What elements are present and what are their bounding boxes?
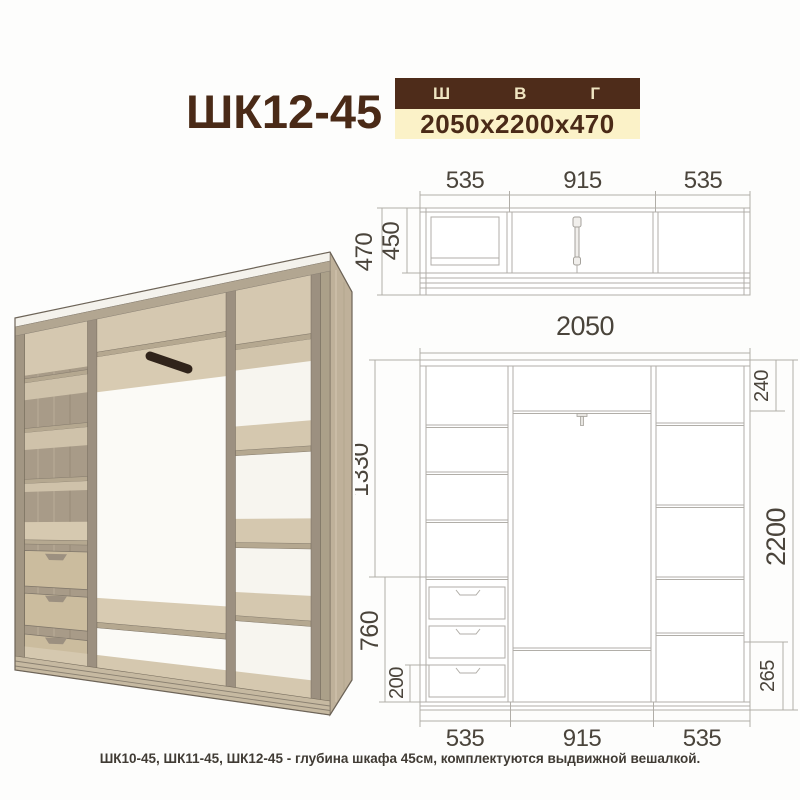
dim-left-plinth: 200 xyxy=(386,667,408,699)
dimensions-value: 2050x2200x470 xyxy=(395,109,640,139)
dimensions-legend: Ш В Г xyxy=(395,78,640,109)
dim-right-top: 240 xyxy=(751,370,773,402)
legend-height-label: В xyxy=(514,84,526,104)
top-view-drawing: 535 915 535 470 450 xyxy=(355,167,750,295)
left-wall xyxy=(15,316,25,671)
dim-bottom-width-right: 535 xyxy=(683,725,722,752)
model-title: ШК12-45 xyxy=(186,84,382,139)
legend-width-label: Ш xyxy=(433,84,450,104)
dim-bottom-width-middle: 915 xyxy=(563,725,602,752)
dim-right-total: 2200 xyxy=(761,508,791,566)
technical-drawing: 535 915 535 470 450 2050 xyxy=(355,155,800,760)
dim-top-width-right: 535 xyxy=(684,167,723,194)
footer-note: ШК10-45, ШК11-45, ШК12-45 - глубина шкаф… xyxy=(0,751,800,766)
dim-top-width-left: 535 xyxy=(446,167,485,194)
dim-front-width-total: 2050 xyxy=(556,311,614,341)
dim-left-upper: 1330 xyxy=(355,443,374,497)
dimensions-box: Ш В Г 2050x2200x470 xyxy=(395,78,640,139)
right-wall xyxy=(311,271,321,709)
dim-depth-inner: 450 xyxy=(378,222,405,261)
divider-right xyxy=(226,285,236,698)
wardrobe-3d-illustration xyxy=(0,240,365,755)
front-drawers xyxy=(429,587,505,697)
dim-bottom-width-left: 535 xyxy=(446,725,485,752)
dim-right-bottom: 265 xyxy=(757,660,779,692)
dim-left-drawers: 760 xyxy=(356,611,384,651)
dim-top-width-middle: 915 xyxy=(563,167,602,194)
catalog-page: ШК12-45 Ш В Г 2050x2200x470 xyxy=(0,0,800,800)
side-panel xyxy=(330,252,352,715)
front-view-drawing: 2050 xyxy=(355,311,798,752)
divider-left xyxy=(88,312,97,678)
dim-depth-total: 470 xyxy=(355,233,378,272)
legend-depth-label: Г xyxy=(590,84,600,104)
